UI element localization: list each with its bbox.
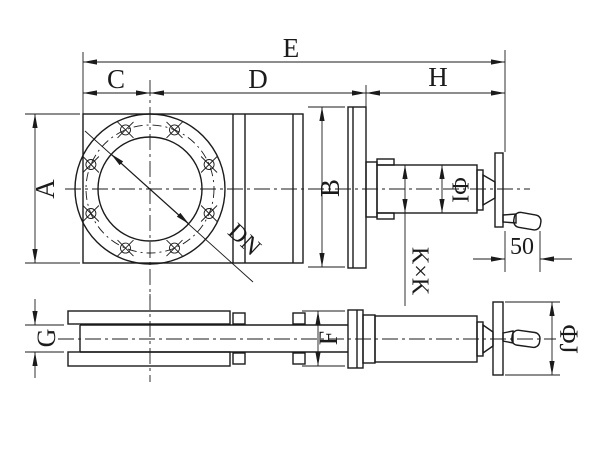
guide-block <box>233 313 245 324</box>
handle <box>513 211 542 230</box>
bolt-hole <box>201 157 217 173</box>
gland-tab <box>377 159 394 165</box>
dim-label-50: 50 <box>510 234 534 260</box>
dim-label-A: A <box>30 179 60 199</box>
flange-bar-bottom <box>68 352 230 366</box>
drawing-ink-layer: E C D H A B DN K×K ΦI <box>25 33 583 382</box>
plan-view <box>58 294 556 382</box>
dim-label-KxK: K×K <box>406 247 432 296</box>
guide-block <box>233 353 245 364</box>
stem-nut-housing <box>477 170 483 210</box>
bolt-hole <box>167 122 183 138</box>
bolt-hole <box>118 122 134 138</box>
handle-grip <box>513 211 542 230</box>
guide-block <box>293 313 305 324</box>
dim-label-C: C <box>107 64 125 94</box>
bolt-hole <box>118 240 134 256</box>
flange-bar-top <box>68 311 230 324</box>
dim-label-E: E <box>283 33 300 63</box>
handwheel-plan <box>493 302 503 375</box>
yoke-plate <box>348 107 366 268</box>
bolt-hole <box>83 157 99 173</box>
gland-tab <box>377 213 394 219</box>
front-view-dimensions: E C D H A B DN K×K ΦI <box>25 33 572 306</box>
gland-step <box>366 162 377 217</box>
dim-label-G: G <box>32 329 61 348</box>
bolt-hole <box>201 206 217 222</box>
dim-label-B: B <box>315 179 345 197</box>
dim-label-phiJ: ΦJ <box>554 324 583 353</box>
bolt-hole <box>167 240 183 256</box>
valve-technical-drawing: E C D H A B DN K×K ΦI <box>0 0 600 450</box>
handwheel-hub <box>483 175 495 205</box>
valve-body <box>83 114 303 263</box>
guide-block <box>293 353 305 364</box>
dim-label-F: F <box>314 331 343 345</box>
drawing-canvas: E C D H A B DN K×K ΦI <box>0 0 600 450</box>
bolt-hole <box>83 206 99 222</box>
handwheel <box>495 153 503 227</box>
dim-label-D: D <box>248 64 268 94</box>
dim-label-phiI: ΦI <box>446 177 472 203</box>
dim-label-H: H <box>428 62 448 92</box>
dim-label-DN: DN <box>222 219 265 262</box>
